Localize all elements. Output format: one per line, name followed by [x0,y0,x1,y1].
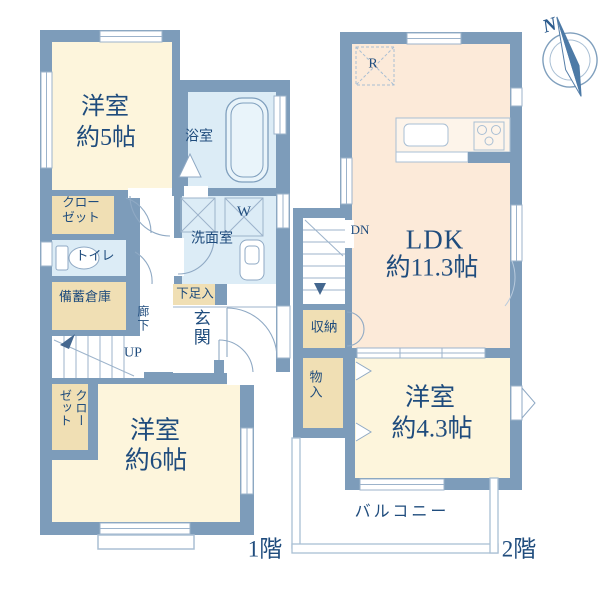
room43-label-line2: 約4.3帖 [391,416,472,443]
room-ldk [352,44,510,348]
room43-label-line1: 洋室 [405,385,455,412]
porch-outline [98,535,194,549]
entrance-floor [227,284,276,306]
room6-label-line1: 洋室 [130,418,180,445]
hallway-floor [140,196,174,372]
floor2-plan [292,32,535,553]
closet-top-label-line2: ゼット [62,211,100,225]
wash-basin [240,240,264,280]
room6-label-line2: 約6帖 [125,448,188,475]
bathtub [226,98,268,182]
casement-window-marker [522,388,535,418]
closet-bottom-label: クローゼット [53,389,87,427]
dn-label: DN [351,223,370,237]
floorplan-page: 洋室 約5帖 浴室 クロー ゼット トイレ 備蓄倉庫 洗面室 W 下足入 廊下 … [0,0,600,600]
stairs2-floor [303,218,345,304]
ldk-label-line1: LDK [406,225,465,254]
room5-label-line1: 洋室 [81,95,129,121]
entrance-label: 玄関 [190,309,210,347]
closet2-label: 物入 [307,370,322,400]
balcony-label: バルコニー [355,503,450,520]
stock-storage-label: 備蓄倉庫 [59,290,111,304]
floor1-name: 1階 [248,538,283,563]
shoe-box-label: 下足入 [176,287,214,301]
washer-label: W [237,204,251,220]
storage2-label: 収納 [311,321,338,336]
floor2-name: 2階 [502,538,537,563]
room5-label-line2: 約5帖 [76,126,136,152]
washroom-label: 洗面室 [191,231,233,246]
sink [404,124,448,146]
ldk-label-line2: 約11.3帖 [386,255,479,282]
refrigerator-label: R [368,56,377,71]
closet-top-label-line1: クロー [62,196,100,210]
hallway-label: 廊下 [135,305,149,333]
kitchen-counter [396,118,522,163]
up-label: UP [124,345,142,360]
bath-label: 浴室 [185,129,213,144]
toilet-label: トイレ [75,249,114,263]
